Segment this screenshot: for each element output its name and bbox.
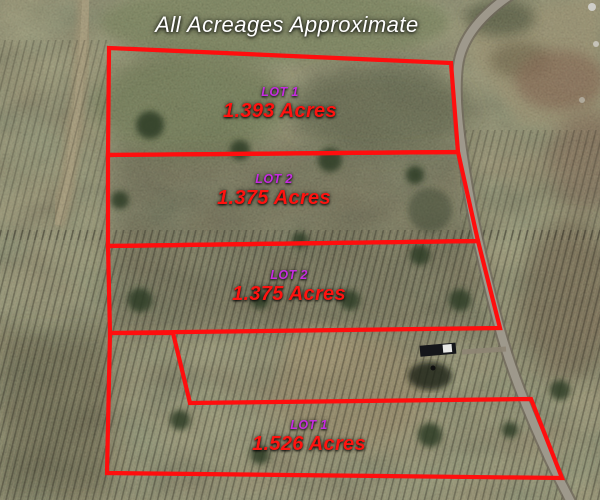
lot-2-acreage: 1.375 Acres	[217, 187, 331, 210]
parked-vehicle	[443, 344, 453, 353]
lot-2-name: LOT 2	[217, 172, 331, 186]
driveway	[462, 349, 506, 352]
lot-3-label: LOT 2 1.375 Acres	[232, 268, 346, 306]
lot-4-label: LOT 1 1.526 Acres	[252, 418, 366, 456]
parcel-map: All Acreages Approximate LOT 1 1.393 Acr…	[0, 0, 600, 500]
lot-3-acreage: 1.375 Acres	[232, 283, 346, 306]
lot-1-name: LOT 1	[223, 85, 337, 99]
lot-4-name: LOT 1	[252, 418, 366, 432]
lot-3-name: LOT 2	[232, 268, 346, 282]
lot-1-acreage: 1.393 Acres	[223, 100, 337, 123]
well-dot	[431, 366, 436, 371]
tree-shadow	[408, 362, 452, 390]
lot-1-label: LOT 1 1.393 Acres	[223, 85, 337, 123]
lot-2-label: LOT 2 1.375 Acres	[217, 172, 331, 210]
map-title: All Acreages Approximate	[155, 12, 419, 38]
lot-4-acreage: 1.526 Acres	[252, 433, 366, 456]
